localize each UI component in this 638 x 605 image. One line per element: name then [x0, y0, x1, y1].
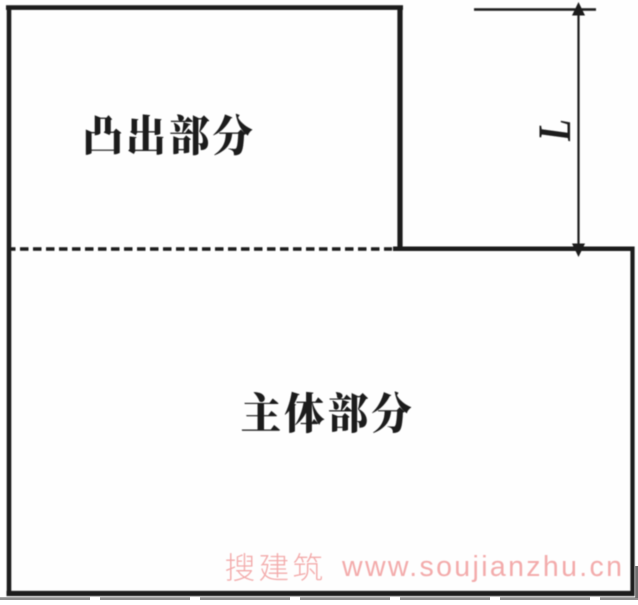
svg-text:www.soujianzhu.cn: www.soujianzhu.cn: [341, 551, 622, 583]
svg-text:L: L: [529, 119, 581, 142]
